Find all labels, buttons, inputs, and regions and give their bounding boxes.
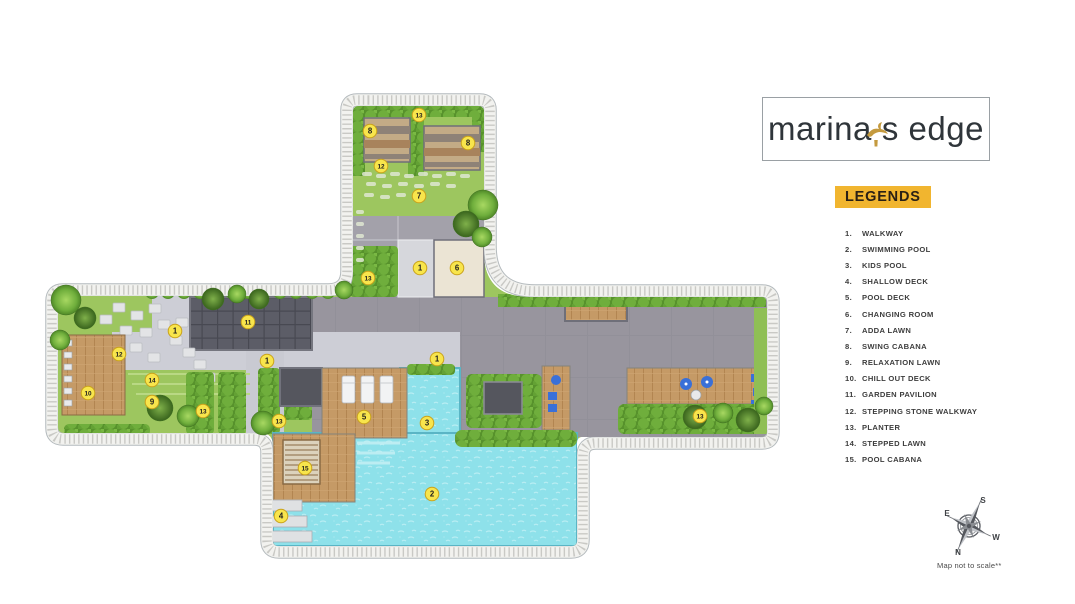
pool-deck xyxy=(322,368,407,438)
plan-marker-6: 6 xyxy=(450,261,464,275)
svg-text:15: 15 xyxy=(301,466,309,473)
svg-text:1: 1 xyxy=(265,357,270,366)
svg-text:13: 13 xyxy=(415,113,423,120)
plan-marker-7: 7 xyxy=(412,189,426,203)
logo-part2: s edge xyxy=(882,110,984,147)
compass-west-label: W xyxy=(992,533,1000,542)
svg-text:6: 6 xyxy=(455,264,460,273)
plan-marker-12: 12 xyxy=(112,347,126,361)
legend-item: 12.STEPPING STONE WALKWAY xyxy=(845,403,1025,419)
svg-text:7: 7 xyxy=(417,192,421,201)
legend-item: 4.SHALLOW DECK xyxy=(845,274,1025,290)
legend-item: 3.KIDS POOL xyxy=(845,257,1025,273)
svg-text:1: 1 xyxy=(418,264,423,273)
svg-text:9: 9 xyxy=(150,398,155,407)
plan-marker-13: 13 xyxy=(412,108,426,122)
chair-icon xyxy=(548,392,557,400)
hedge-row-pool xyxy=(455,430,577,447)
lounge-deck xyxy=(627,368,766,408)
plan-marker-5: 5 xyxy=(357,410,371,424)
legend-item: 10.CHILL OUT DECK xyxy=(845,371,1025,387)
plan-marker-1: 1 xyxy=(168,324,182,338)
svg-text:5: 5 xyxy=(362,413,367,422)
plan-marker-1: 1 xyxy=(430,352,444,366)
svg-text:13: 13 xyxy=(364,276,372,283)
legend-item: 6.CHANGING ROOM xyxy=(845,306,1025,322)
plan-marker-12: 12 xyxy=(374,159,388,173)
legend-item: 11.GARDEN PAVILION xyxy=(845,387,1025,403)
chill-out-deck xyxy=(62,335,125,415)
pool-cabana xyxy=(273,434,355,502)
legend-item: 1.WALKWAY xyxy=(845,225,1025,241)
legend-title: LEGENDS xyxy=(835,186,931,208)
legend-item: 13.PLANTER xyxy=(845,419,1025,435)
logo-part1: marina xyxy=(768,110,872,147)
legend-item: 14.STEPPED LAWN xyxy=(845,435,1025,451)
planter-box xyxy=(484,382,522,414)
svg-text:13: 13 xyxy=(199,409,207,416)
plan-marker-15: 15 xyxy=(298,461,312,475)
legend-item: 15.POOL CABANA xyxy=(845,452,1025,468)
legend-item: 7.ADDA LAWN xyxy=(845,322,1025,338)
plan-marker-1: 1 xyxy=(260,354,274,368)
plan-marker-14: 14 xyxy=(145,373,159,387)
shade-structure xyxy=(280,368,322,406)
svg-text:8: 8 xyxy=(466,139,471,148)
svg-text:12: 12 xyxy=(377,164,385,171)
svg-text:8: 8 xyxy=(368,127,373,136)
plan-marker-4: 4 xyxy=(274,509,288,523)
lounger-icon xyxy=(380,376,393,403)
svg-text:4: 4 xyxy=(279,512,284,521)
compass-rose: S E W N xyxy=(934,490,1004,566)
side-wood-strip xyxy=(542,366,570,430)
compass-east-label: E xyxy=(944,509,950,518)
plan-marker-8: 8 xyxy=(461,136,475,150)
planter-hedge xyxy=(218,372,246,434)
legend-list: 1.WALKWAY2.SWIMMING POOL3.KIDS POOL4.SHA… xyxy=(845,225,1025,468)
plan-marker-13: 13 xyxy=(693,409,707,423)
plan-marker-13: 13 xyxy=(361,271,375,285)
logo-apostrophe: ' xyxy=(873,134,880,165)
hedge-strip xyxy=(407,364,455,375)
lounger-icon xyxy=(361,376,374,403)
plan-marker-2: 2 xyxy=(425,487,439,501)
logo-box: marina's edge xyxy=(762,97,990,161)
svg-text:12: 12 xyxy=(115,352,123,359)
compass-north-label: N xyxy=(955,548,961,557)
site-plan: 13881271613111121114910131313531524 xyxy=(20,80,800,580)
compass-south-label: S xyxy=(980,496,986,505)
plan-marker-9: 9 xyxy=(145,395,159,409)
plan-marker-13: 13 xyxy=(196,404,210,418)
plan-marker-1: 1 xyxy=(413,261,427,275)
planter-hedge xyxy=(350,246,398,297)
legend-item: 2.SWIMMING POOL xyxy=(845,241,1025,257)
plan-marker-11: 11 xyxy=(241,315,255,329)
lounger-icon xyxy=(342,376,355,403)
table-icon xyxy=(691,390,701,400)
svg-text:13: 13 xyxy=(696,414,704,421)
legend-item: 9.RELAXATION LAWN xyxy=(845,355,1025,371)
svg-text:11: 11 xyxy=(245,320,252,327)
svg-text:3: 3 xyxy=(425,419,430,428)
plan-marker-8: 8 xyxy=(363,124,377,138)
svg-text:10: 10 xyxy=(84,391,92,398)
logo-text: marina's edge xyxy=(768,110,984,148)
plan-marker-13: 13 xyxy=(272,414,286,428)
map-scale-note: Map not to scale** xyxy=(937,561,1047,570)
svg-text:2: 2 xyxy=(430,490,435,499)
svg-text:1: 1 xyxy=(173,327,178,336)
umbrella-icon xyxy=(551,375,561,385)
svg-text:13: 13 xyxy=(275,419,283,426)
chair-icon xyxy=(548,404,557,412)
plan-marker-10: 10 xyxy=(81,386,95,400)
svg-text:14: 14 xyxy=(148,378,156,385)
page: 13881271613111121114910131313531524 mari… xyxy=(0,0,1075,604)
plan-marker-3: 3 xyxy=(420,416,434,430)
svg-text:1: 1 xyxy=(435,355,440,364)
legend-item: 8.SWING CABANA xyxy=(845,338,1025,354)
hedge-left-strip xyxy=(353,112,365,176)
legend-item: 5.POOL DECK xyxy=(845,290,1025,306)
